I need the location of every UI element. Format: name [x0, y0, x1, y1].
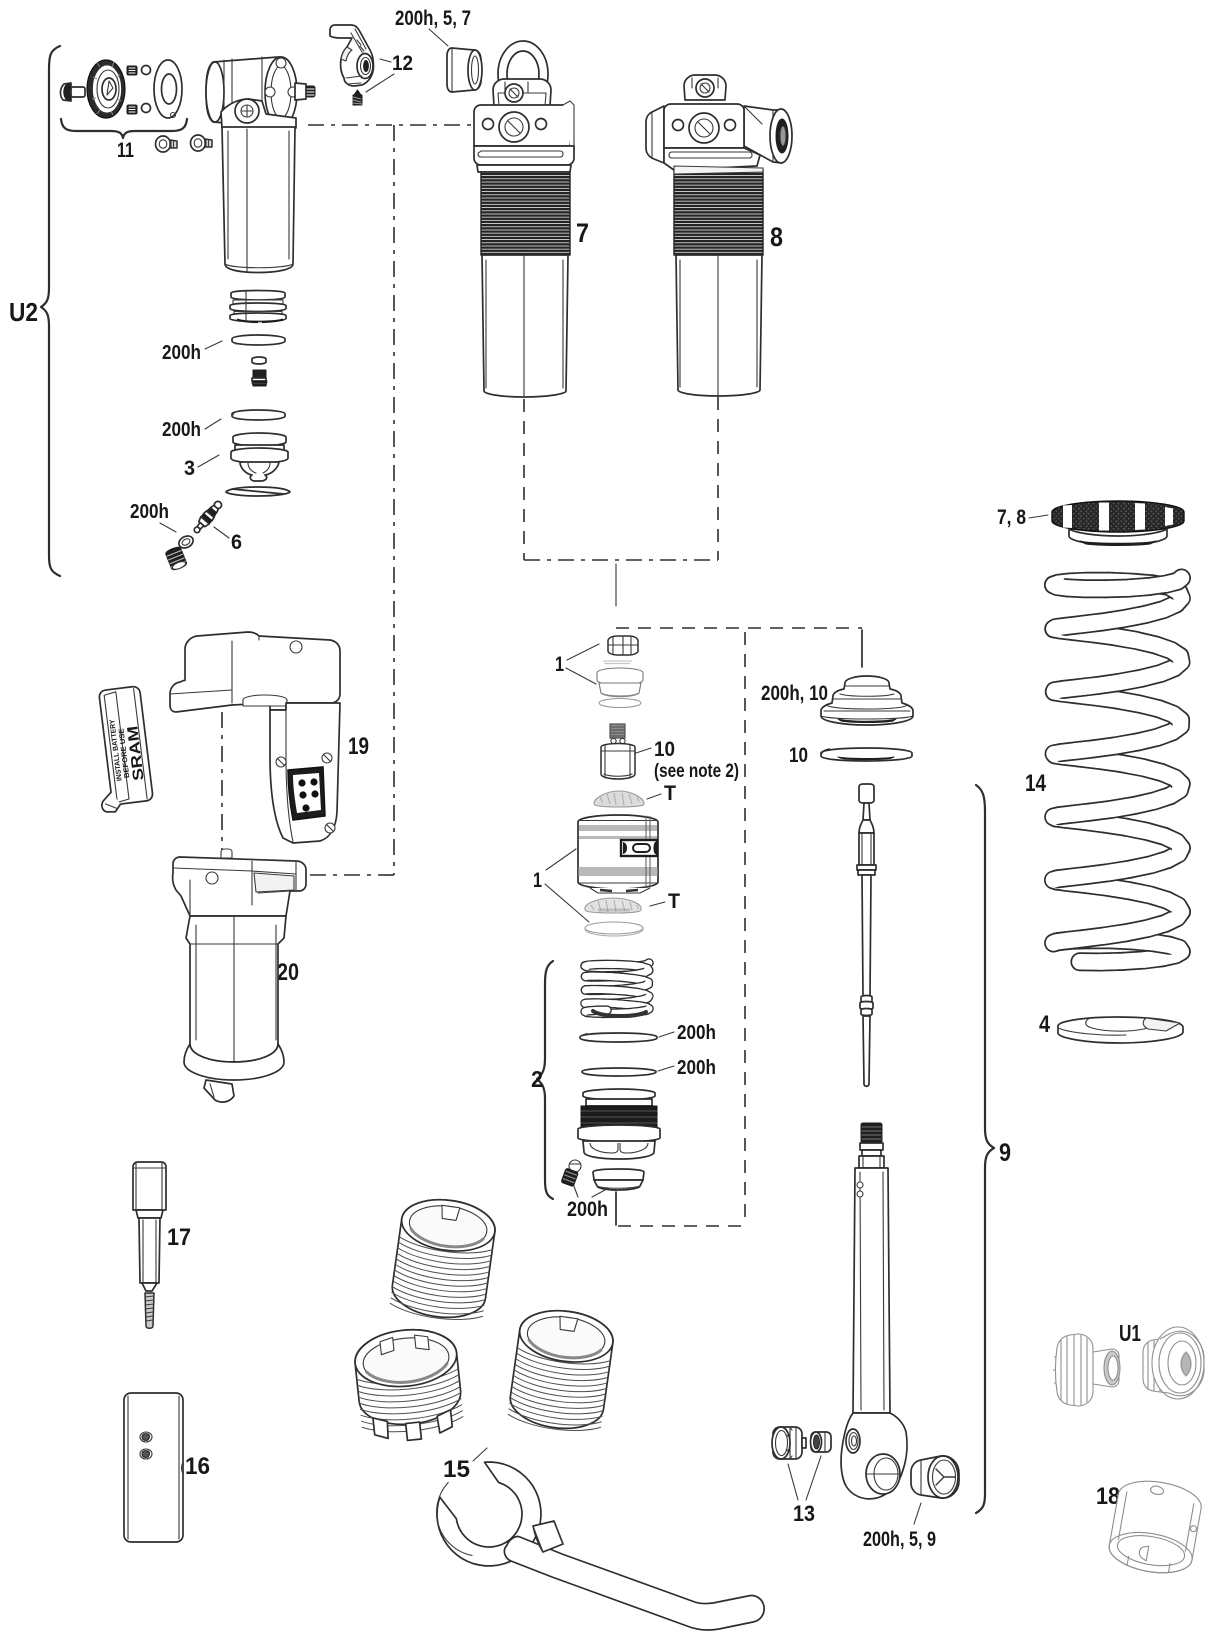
svg-text:1: 1 [533, 869, 542, 892]
svg-text:U2: U2 [9, 297, 38, 327]
svg-text:14: 14 [1025, 770, 1047, 797]
svg-text:200h: 200h [567, 1198, 608, 1221]
svg-text:11: 11 [117, 139, 134, 162]
svg-text:200h: 200h [677, 1022, 716, 1044]
svg-text:200h: 200h [130, 501, 169, 523]
svg-text:10: 10 [654, 738, 675, 761]
svg-text:T: T [668, 890, 680, 913]
svg-text:9: 9 [999, 1139, 1011, 1167]
svg-text:U1: U1 [1119, 1320, 1141, 1346]
svg-text:200h, 10: 200h, 10 [761, 682, 828, 705]
svg-text:13: 13 [793, 1501, 815, 1526]
svg-text:(see note 2): (see note 2) [654, 761, 739, 782]
svg-text:T: T [664, 782, 676, 805]
svg-text:1: 1 [555, 653, 564, 676]
svg-text:8: 8 [770, 222, 783, 252]
svg-text:20: 20 [277, 959, 299, 986]
svg-text:16: 16 [185, 1453, 210, 1480]
svg-text:3: 3 [184, 457, 195, 480]
svg-text:200h: 200h [677, 1057, 716, 1079]
svg-text:200h, 5, 7: 200h, 5, 7 [395, 7, 471, 30]
svg-text:200h: 200h [162, 342, 201, 364]
svg-text:7, 8: 7, 8 [997, 506, 1026, 529]
svg-text:10: 10 [789, 744, 808, 767]
svg-text:17: 17 [167, 1224, 191, 1251]
svg-text:6: 6 [231, 531, 242, 554]
svg-text:15: 15 [443, 1456, 470, 1483]
svg-text:4: 4 [1039, 1011, 1051, 1038]
svg-text:200h, 5, 9: 200h, 5, 9 [863, 1528, 936, 1551]
svg-text:12: 12 [392, 52, 413, 75]
svg-text:2: 2 [531, 1066, 543, 1092]
svg-text:19: 19 [348, 733, 369, 760]
svg-text:7: 7 [576, 218, 589, 248]
svg-text:200h: 200h [162, 419, 201, 441]
